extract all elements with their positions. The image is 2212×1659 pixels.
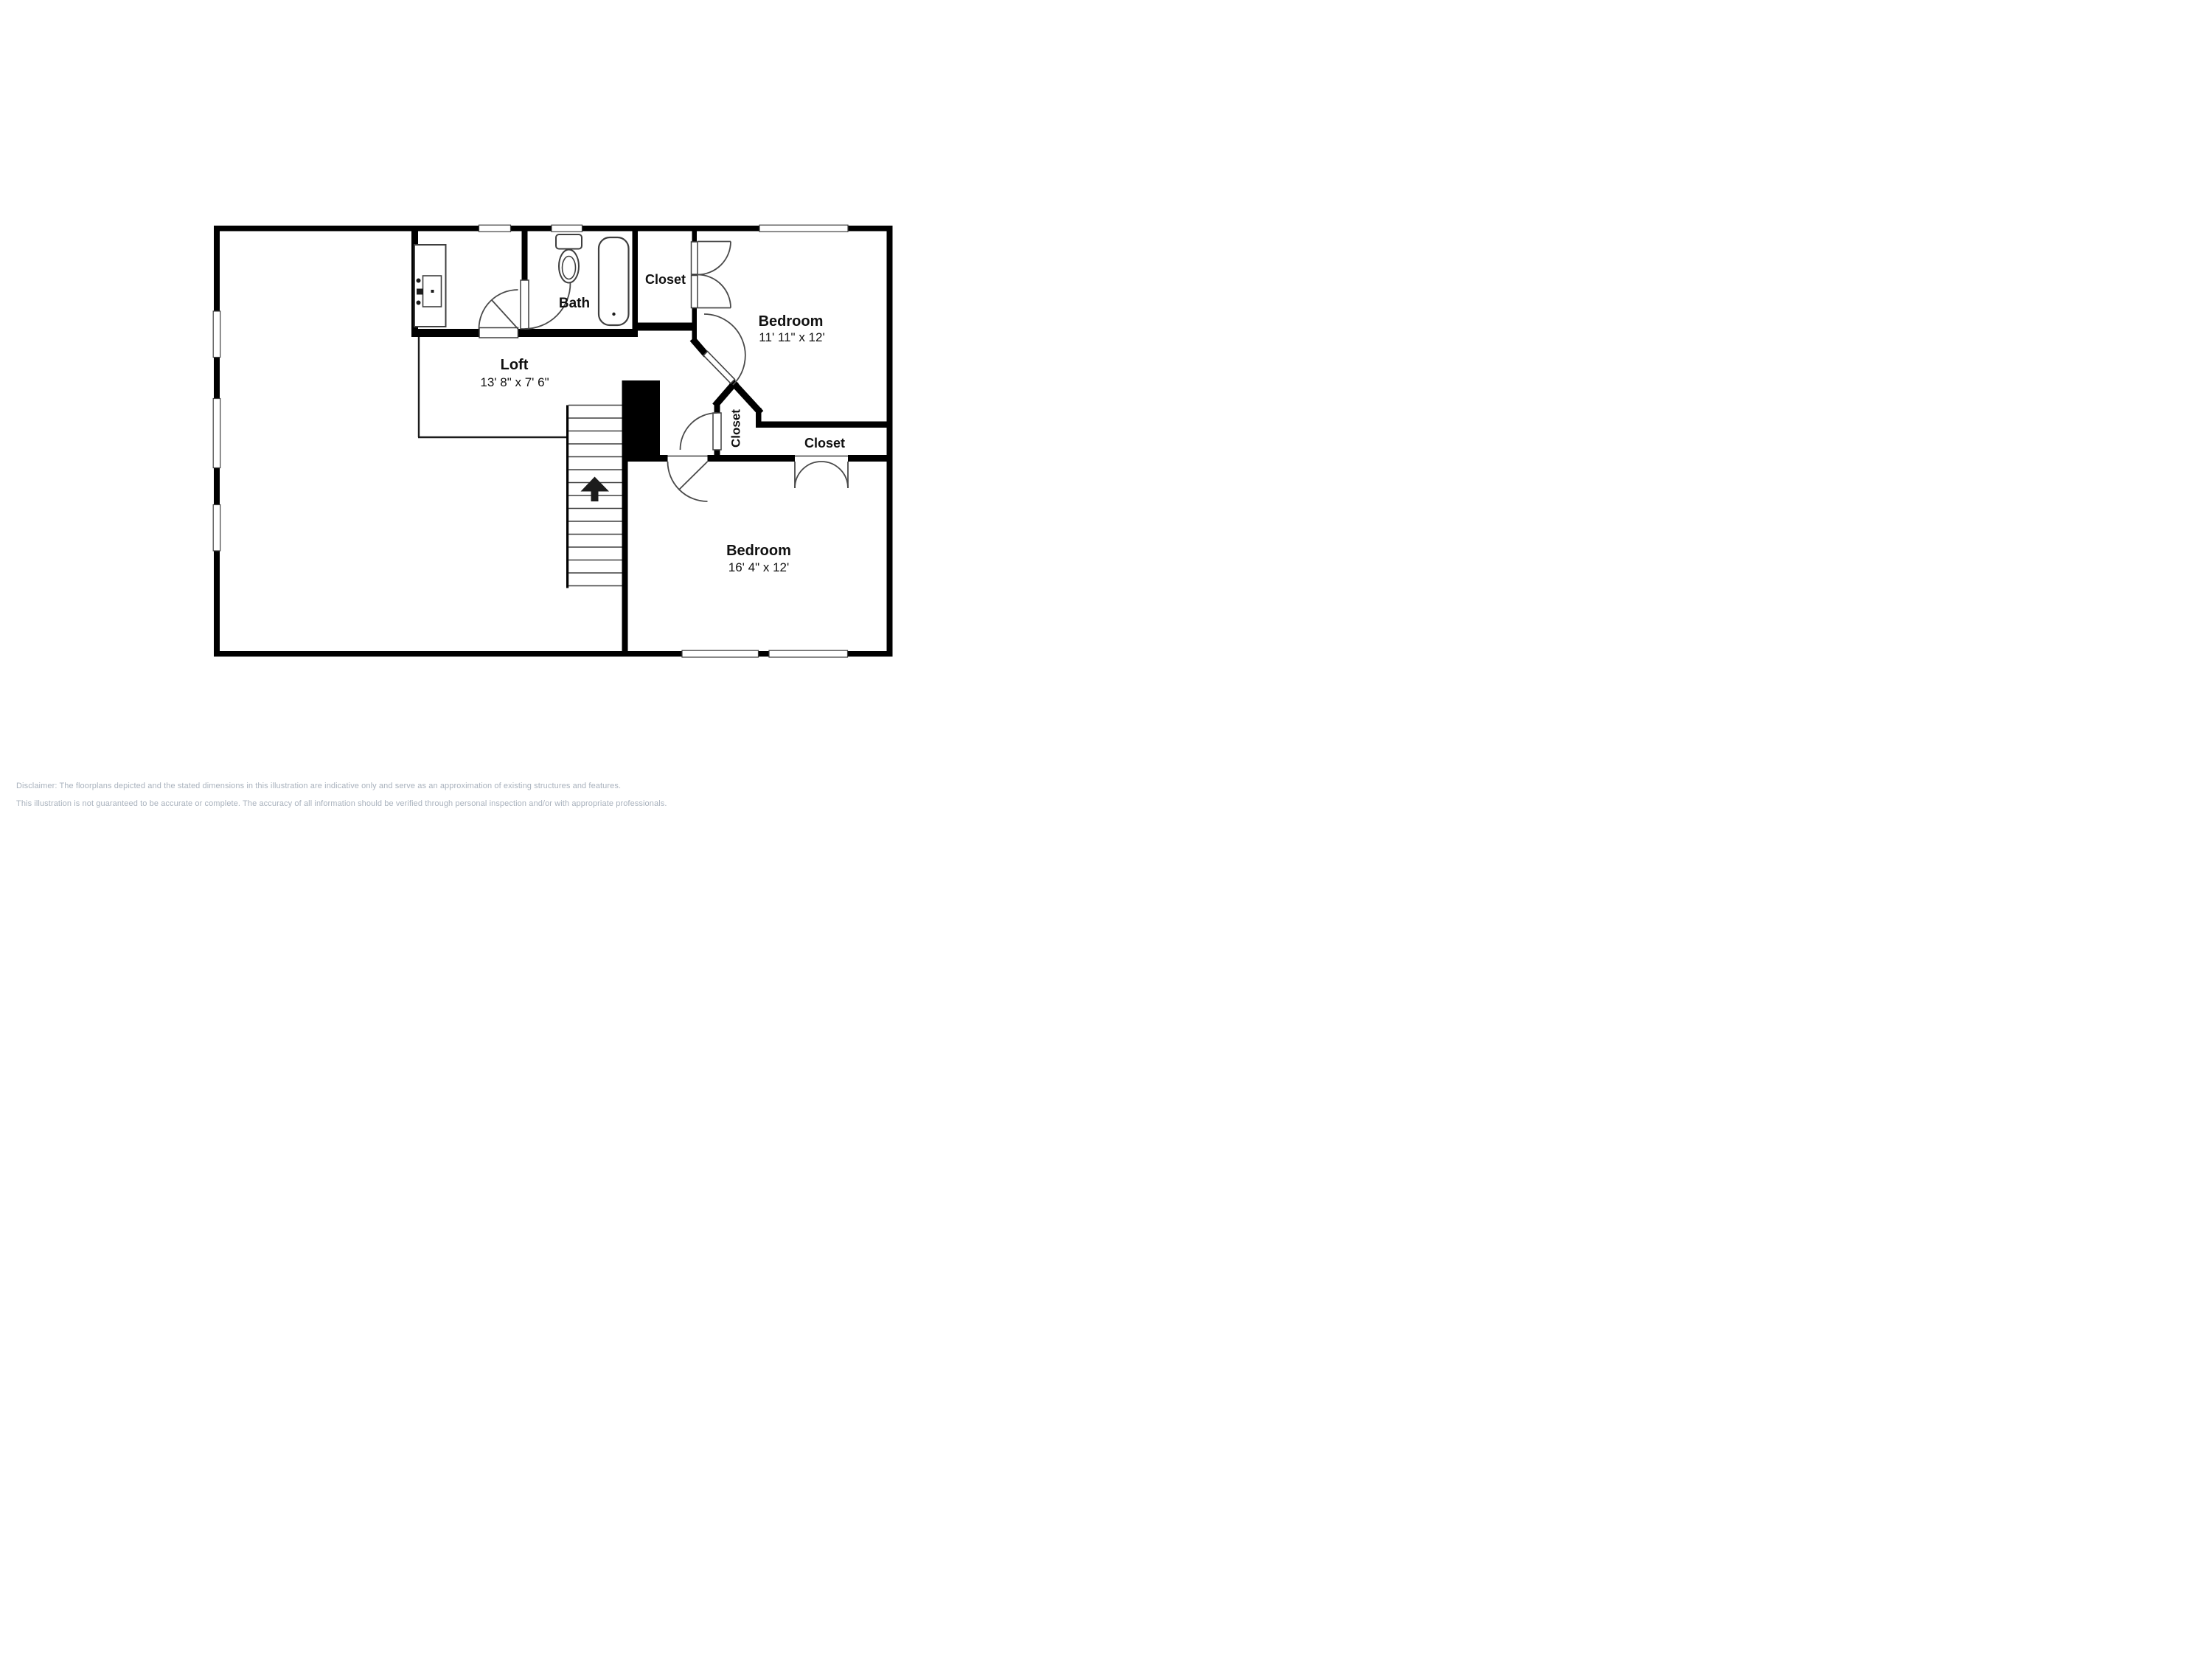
door-leaf: [692, 242, 698, 274]
room-dims-bedroom-bottom: 16' 4" x 12': [728, 560, 789, 574]
room-label-closet-angled: Closet: [729, 409, 743, 448]
window: [552, 225, 582, 232]
wall-closet-top-left: [633, 226, 639, 331]
wall-pentagon-left-slope: [717, 384, 734, 404]
room-dims-loft: 13' 8" x 7' 6": [480, 375, 549, 389]
door-leaf: [692, 276, 698, 308]
wall-pentagon-right-slope: [734, 384, 759, 411]
room-label-bedroom-bottom: Bedroom: [726, 543, 791, 559]
window: [213, 505, 220, 552]
toilet: [556, 234, 582, 283]
door-leaf: [479, 328, 518, 338]
window: [769, 650, 848, 657]
sink-vanity: [414, 245, 446, 327]
window: [213, 311, 220, 358]
window: [759, 225, 848, 232]
faucet-handle: [417, 301, 421, 305]
tub-drain: [612, 313, 615, 316]
wall-closet-row-top: [756, 422, 887, 428]
disclaimer-line-2: This illustration is not guaranteed to b…: [16, 799, 667, 808]
door-leaf: [521, 280, 529, 329]
room-label-closet-right: Closet: [804, 436, 845, 451]
floorplan-canvas: Loft 13' 8" x 7' 6" Bath Closet Bedroom …: [0, 0, 1106, 829]
door-opening: [668, 454, 708, 463]
wall-closet-angled-bottom: [704, 455, 761, 462]
stairs: [566, 406, 622, 588]
stair-block: [622, 380, 661, 461]
door-arc: [681, 413, 717, 450]
stairs-left-wall: [566, 406, 568, 588]
wall-bedroom-bottom-left: [622, 461, 628, 651]
wall-right: [887, 226, 893, 657]
door-arc: [795, 462, 821, 488]
stairs-up-arrow-icon: [581, 477, 610, 502]
room-label-loft: Loft: [501, 357, 529, 373]
door-leaf-line: [492, 300, 518, 329]
door-leaf-diagonal: [703, 352, 735, 384]
wall-diagonal-stub: [695, 341, 704, 352]
faucet-handle: [417, 279, 421, 283]
window: [213, 399, 220, 468]
door-arc: [821, 462, 848, 488]
door-leaf-line: [679, 462, 708, 490]
door-arc: [698, 275, 731, 308]
sink-drain: [431, 290, 434, 293]
wall-bath-bottom: [411, 329, 638, 337]
outer-walls: [214, 226, 893, 657]
disclaimer-line-1: Disclaimer: The floorplans depicted and …: [16, 782, 621, 790]
floorplan-page: Loft 13' 8" x 7' 6" Bath Closet Bedroom …: [0, 0, 1106, 829]
window: [682, 650, 759, 657]
room-dims-bedroom-top: 11' 11" x 12': [759, 330, 824, 344]
windows: [213, 225, 848, 657]
wall-closet-top-bottom: [633, 323, 698, 331]
room-label-closet-top: Closet: [645, 272, 686, 287]
room-label-bath: Bath: [559, 296, 590, 311]
faucet-spout: [417, 289, 423, 295]
door-arc: [698, 242, 731, 275]
bathtub: [599, 237, 629, 325]
window: [479, 225, 511, 232]
room-label-bedroom-top: Bedroom: [759, 313, 824, 330]
door-leaf: [713, 413, 721, 450]
